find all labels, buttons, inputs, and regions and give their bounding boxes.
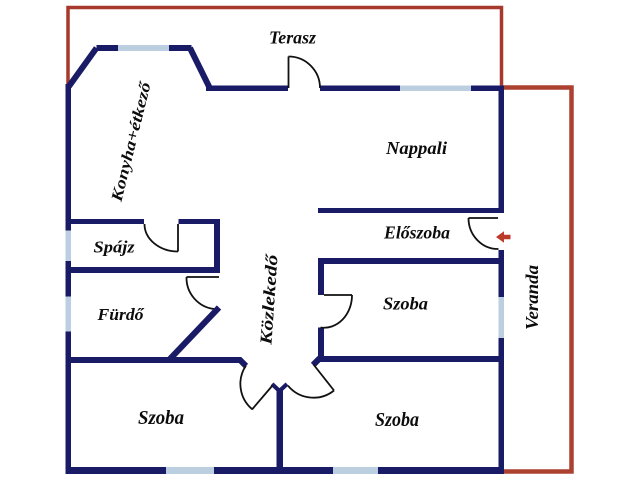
svg-text:Spájz: Spájz <box>94 238 136 257</box>
svg-text:Előszoba: Előszoba <box>383 223 450 243</box>
svg-text:Terasz: Terasz <box>269 28 316 48</box>
svg-text:Szoba: Szoba <box>383 294 428 314</box>
svg-text:Szoba: Szoba <box>138 408 184 429</box>
svg-text:Nappali: Nappali <box>385 138 447 158</box>
svg-text:Veranda: Veranda <box>522 265 542 330</box>
svg-text:Fürdő: Fürdő <box>96 305 145 324</box>
svg-text:Szoba: Szoba <box>375 410 419 431</box>
